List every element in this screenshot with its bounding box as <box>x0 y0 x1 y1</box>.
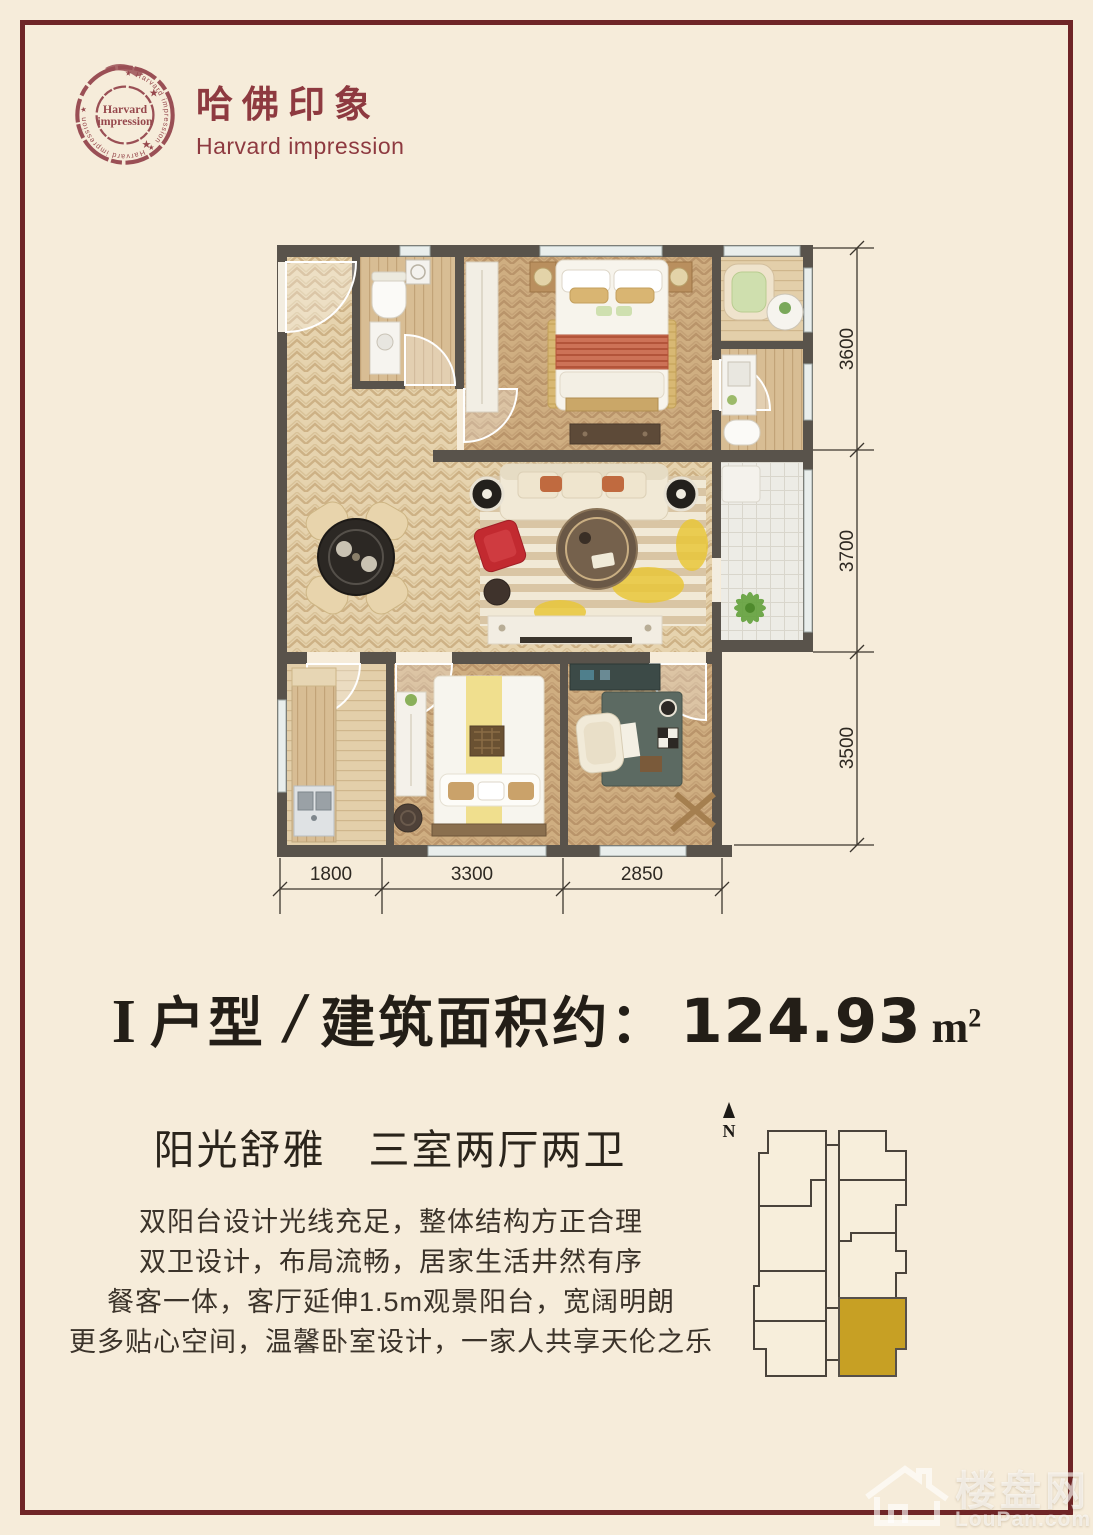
unit-right-2 <box>839 1180 906 1241</box>
north-label: N <box>723 1121 736 1141</box>
watermark: 楼盘网 LouPan.com <box>861 1459 1091 1531</box>
brand-name-zh: 哈佛印象 <box>196 74 404 128</box>
keyplan-units <box>754 1131 906 1376</box>
feature-line: 更多贴心空间，温馨卧室设计，一家人共享天伦之乐 <box>28 1322 754 1362</box>
title-slash: / <box>278 981 312 1057</box>
brand-name-en: Harvard impression <box>196 133 404 160</box>
feature-line: 双卫设计，布局流畅，居家生活井然有序 <box>28 1242 754 1282</box>
area-unit-sup: 2 <box>968 1003 981 1032</box>
study-chair <box>575 712 625 774</box>
stamp-line2: impression <box>97 114 153 128</box>
living-room-furniture <box>471 464 708 644</box>
unit-highlighted <box>839 1298 906 1376</box>
dim-label-2850: 2850 <box>621 864 663 885</box>
north-arrow: N <box>723 1102 736 1141</box>
unit-type-roman: I <box>112 987 136 1058</box>
watermark-en: LouPan.com <box>955 1509 1091 1531</box>
kitchen-fixtures <box>292 668 336 842</box>
unit-type-label: 户型 <box>150 978 266 1058</box>
dim-label-3700: 3700 <box>837 530 858 572</box>
floorplan-poster: ★ Harvard impression ★ Harvard impressio… <box>0 0 1093 1535</box>
watermark-text: 楼盘网 LouPan.com <box>955 1470 1091 1531</box>
watermark-house-icon <box>861 1459 953 1531</box>
bedroom2-furniture <box>394 676 546 836</box>
brand-logo: ★ Harvard impression ★ Harvard impressio… <box>70 60 404 170</box>
dimension-bottom: 1800 3300 2850 <box>273 858 729 914</box>
floor-plan: 3600 3700 3500 1800 3300 2850 <box>255 225 895 925</box>
dim-label-1800: 1800 <box>310 864 352 885</box>
brand-stamp-icon: ★ Harvard impression ★ Harvard impressio… <box>70 60 180 170</box>
area-unit-base: m <box>932 1002 969 1053</box>
area-unit: m2 <box>932 1002 982 1053</box>
feature-line: 双阳台设计光线充足，整体结构方正合理 <box>28 1202 754 1242</box>
building-key-plan: N <box>698 1093 930 1395</box>
unit-right-3 <box>839 1233 906 1298</box>
area-label: 建筑面积约： <box>320 978 668 1058</box>
tagline: 阳光舒雅 三室两厅两卫 <box>60 1116 720 1176</box>
feature-line: 餐客一体，客厅延伸1.5m观景阳台，宽阔明朗 <box>28 1282 754 1322</box>
dim-label-3600: 3600 <box>837 328 858 370</box>
unit-left-4 <box>754 1321 826 1376</box>
stamp-star-icon: ★ <box>142 139 152 151</box>
dim-label-3500: 3500 <box>837 727 858 769</box>
watermark-zh: 楼盘网 <box>955 1470 1091 1512</box>
checkerboard <box>658 728 678 748</box>
brand-wordmark: 哈佛印象 Harvard impression <box>196 60 404 170</box>
unit-title: I户型/建筑面积约：124.93m2 <box>0 978 1093 1058</box>
stamp-star-icon: ★ <box>149 88 159 100</box>
unit-right-1 <box>839 1131 906 1180</box>
feature-list: 双阳台设计光线充足，整体结构方正合理 双卫设计，布局流畅，居家生活井然有序 餐客… <box>28 1202 754 1362</box>
dim-label-3300: 3300 <box>451 864 493 885</box>
unit-left-3 <box>754 1271 826 1321</box>
area-value: 124.93 <box>680 986 921 1057</box>
corridor <box>826 1131 839 1376</box>
bathroom2-fixtures <box>722 355 760 445</box>
